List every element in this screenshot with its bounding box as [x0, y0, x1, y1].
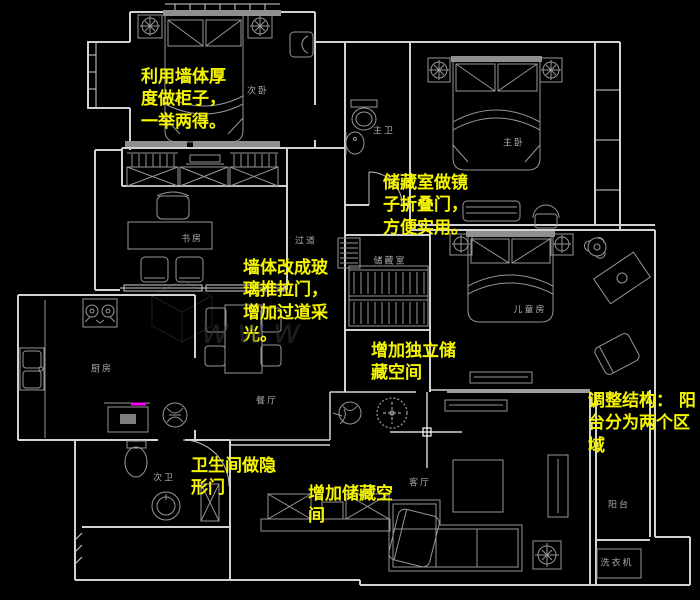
room-secondary-bedroom: 次卧 — [247, 84, 269, 97]
toilet-second-bath — [125, 441, 147, 477]
basin-second-bath — [152, 492, 180, 520]
stool-secondary-bedroom — [290, 32, 313, 57]
plant-kitchen — [163, 403, 187, 427]
tv-cabinet-side — [548, 455, 568, 517]
sofa-living-room — [389, 500, 522, 571]
room-kids-room: 儿童房 — [513, 303, 546, 316]
bed-master-bedroom — [451, 56, 542, 170]
note-balcony-two-zones: 调整结构： 阳台分为两个区域 — [588, 390, 698, 457]
room-study: 书房 — [181, 232, 203, 245]
cad-floorplan-screenshot: 次卧主卫主卧书房过道储藏室儿童房厨房餐厅客厅次卫阳台洗衣机 利用墙体厚度做柜子，… — [0, 0, 700, 600]
ceiling-fan-icon — [584, 238, 606, 259]
note-wall-thickness-cabinet: 利用墙体厚度做柜子，一举两得。 — [141, 66, 231, 133]
cad-crosshair-cursor — [390, 392, 462, 468]
room-storage: 储藏室 — [373, 254, 406, 267]
desk-kids-room — [594, 252, 651, 304]
room-kitchen: 厨房 — [91, 362, 113, 375]
plant-living — [333, 402, 361, 424]
armchair-kids-room — [593, 332, 641, 376]
watermark-logo — [152, 280, 212, 342]
sink-master-bath — [346, 132, 364, 154]
coffee-table — [453, 460, 503, 512]
kitchen-sink-symbol — [20, 300, 45, 438]
note-independent-storage: 增加独立储藏空间 — [371, 340, 463, 385]
room-master-bathroom: 主卫 — [373, 124, 395, 137]
storage-shelving-symbol — [338, 238, 428, 326]
room-balcony: 阳台 — [608, 498, 630, 511]
room-dining: 餐厅 — [256, 394, 278, 407]
room-master-bedroom: 主卧 — [503, 136, 525, 149]
label-washing-machine: 洗衣机 — [600, 556, 633, 569]
tree-plan-symbol — [377, 398, 407, 428]
note-glass-sliding-door: 墙体改成玻璃推拉门，增加过道采光。 — [243, 257, 333, 347]
tv-console-living — [445, 400, 507, 411]
room-corridor: 过道 — [295, 234, 317, 247]
note-add-storage-space: 增加储藏空间 — [308, 483, 400, 528]
note-storage-mirror-folding-door: 储藏室做镜子折叠门，方便实用。 — [383, 172, 473, 239]
note-bathroom-hidden-door: 卫生间做隐形门 — [191, 455, 283, 500]
room-second-bathroom: 次卫 — [153, 471, 175, 484]
tv-console-kids — [470, 372, 532, 383]
kitchen-counter-appliance — [104, 403, 150, 432]
room-living: 客厅 — [409, 476, 431, 489]
stove-symbol — [83, 299, 117, 327]
